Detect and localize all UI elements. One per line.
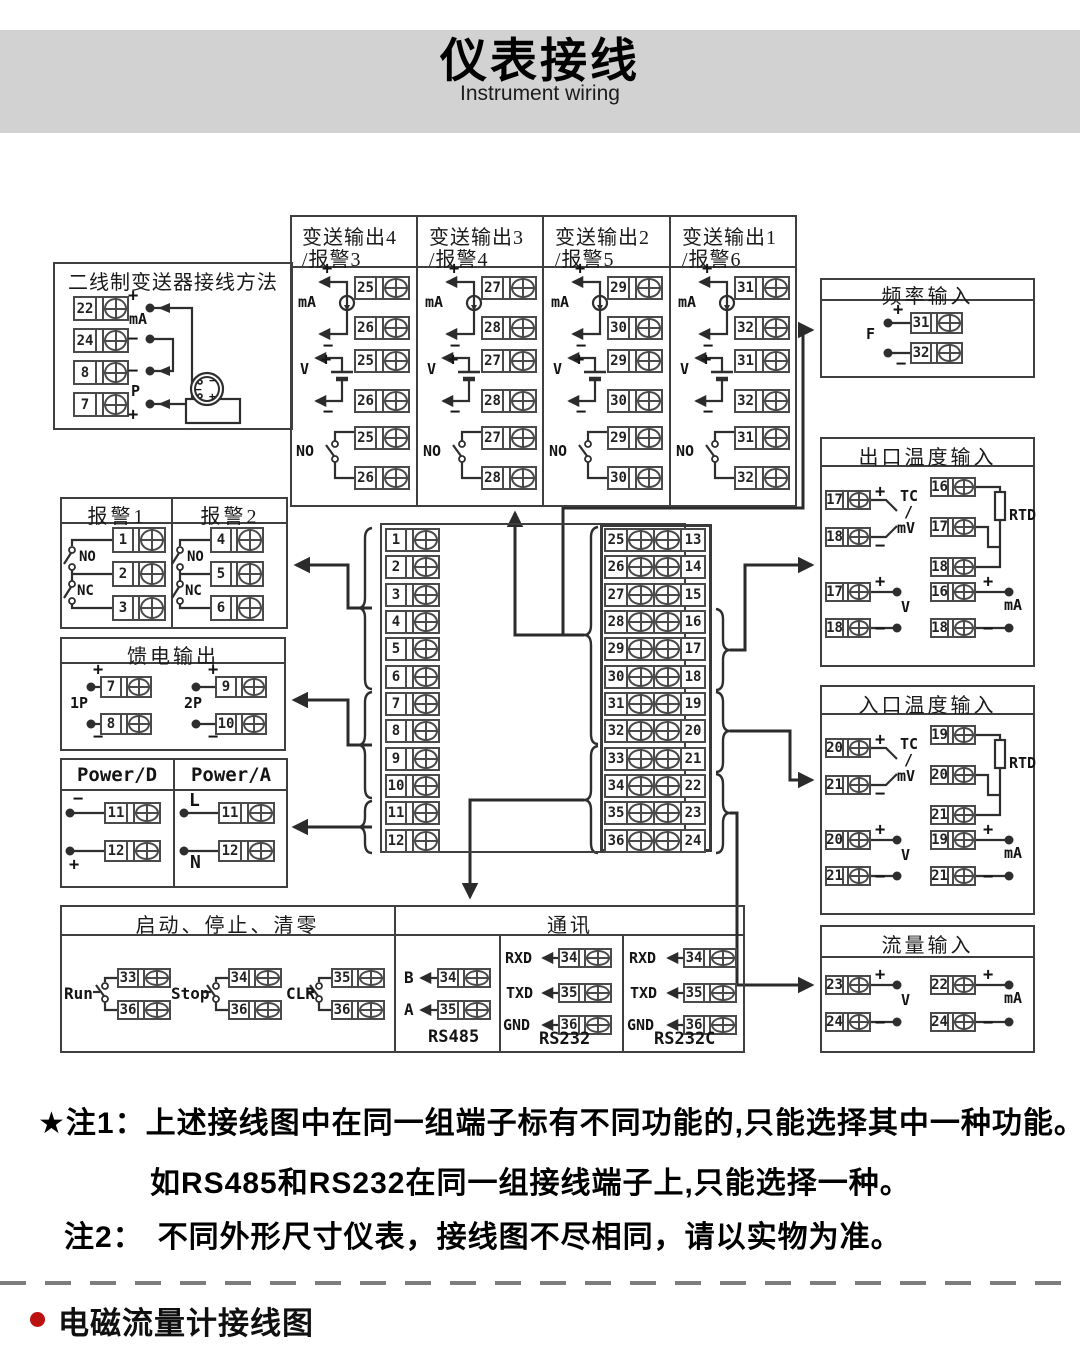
polarity-label: + (449, 261, 459, 278)
terminal-28: 28 (481, 466, 537, 490)
group-label: 2P (184, 696, 202, 711)
terminal-row-26-14: 2614 (604, 555, 706, 579)
terminal-16: 16 (930, 477, 976, 497)
terminal-18: 18 (825, 618, 871, 638)
polarity-label: + (575, 261, 585, 278)
terminal-6: 6 (385, 665, 440, 689)
terminal-35: 35 (437, 1000, 491, 1020)
terminal-12: 12 (218, 840, 275, 862)
terminal-17: 17 (825, 490, 871, 510)
terminal-26: 26 (354, 466, 410, 490)
unit-label: mA (129, 312, 147, 327)
polarity-label: + (69, 857, 79, 874)
terminal-9: 9 (215, 676, 267, 698)
terminal-4: 4 (385, 610, 440, 634)
signal-label: GND (627, 1018, 654, 1033)
polarity-label: + (322, 261, 332, 278)
comm-standard-label: RS485 (428, 1029, 479, 1046)
transmitter-minus: − (209, 375, 216, 386)
contact-label: NO (79, 550, 96, 564)
terminal-11: 11 (104, 802, 161, 824)
alarm1-title: 报警1 (62, 500, 172, 529)
polarity-label: + (701, 352, 711, 369)
unit-label: V (901, 848, 910, 863)
polarity-label: − (983, 621, 993, 638)
terminal-18: 18 (930, 618, 976, 638)
terminal-33: 33 (117, 968, 171, 988)
terminal-36: 36 (331, 1000, 385, 1020)
contact-label: NO (676, 444, 694, 459)
rtd-label: RTD (1009, 508, 1036, 523)
polarity-label: − (73, 791, 83, 808)
terminal-row-32-20: 3220 (604, 719, 706, 743)
polarity-label: − (875, 1015, 885, 1032)
stop-label: Stop (171, 986, 210, 1002)
polarity-label: + (574, 352, 584, 369)
polarity-label: − (128, 331, 138, 348)
terminal-17: 17 (825, 582, 871, 602)
polarity-label: − (875, 538, 885, 555)
terminal-36: 36 (228, 1000, 282, 1020)
terminal-10: 10 (215, 713, 267, 735)
contact-label: NC (77, 584, 94, 598)
terminal-30: 30 (607, 389, 663, 413)
terminal-35: 35 (331, 968, 385, 988)
polarity-label: − (983, 869, 993, 886)
unit-label: mA (298, 295, 316, 310)
terminal-21: 21 (930, 805, 976, 825)
terminal-row-25-13: 2513 (604, 528, 706, 552)
terminal-19: 19 (930, 830, 976, 850)
terminal-19: 19 (930, 725, 976, 745)
outlet-temp-title: 出口温度输入 (821, 441, 1034, 470)
terminal-20: 20 (825, 830, 871, 850)
polarity-label: + (983, 967, 993, 984)
unit-label: mA (1004, 598, 1022, 613)
terminal-20: 20 (825, 738, 871, 758)
terminal-10: 10 (385, 774, 440, 798)
polarity-label: − (875, 621, 885, 638)
terminal-28: 28 (481, 316, 537, 340)
clr-label: CLR (286, 986, 315, 1002)
terminal-3: 3 (385, 583, 440, 607)
polarity-label: − (93, 729, 103, 746)
terminal-26: 26 (354, 389, 410, 413)
contact-label: NO (187, 550, 204, 564)
frequency-input-title: 频率输入 (821, 280, 1034, 309)
note-1: ★注1：上述接线图中在同一组端子标有不同功能的,只能选择其中一种功能。 (38, 1098, 1080, 1142)
terminal-22: 22 (73, 296, 129, 321)
terminal-25: 25 (354, 349, 410, 373)
terminal-row-27-15: 2715 (604, 583, 706, 607)
terminal-21: 21 (825, 775, 871, 795)
polarity-label: + (321, 352, 331, 369)
mv-label: mV (897, 769, 915, 784)
terminal-row-35-23: 3523 (604, 801, 706, 825)
terminal-27: 27 (481, 276, 537, 300)
polarity-label: − (208, 729, 218, 746)
terminal-21: 21 (930, 866, 976, 886)
signal-label: TXD (630, 986, 657, 1001)
power-a-title: Power/A (176, 764, 286, 786)
group-label: 1P (70, 696, 88, 711)
terminal-34: 34 (558, 948, 612, 968)
inlet-temp-title: 入口温度输入 (821, 689, 1034, 718)
polarity-label: − (128, 363, 138, 380)
terminal-6: 6 (210, 595, 264, 621)
transmitter-minus: − (195, 384, 202, 395)
contact-label: NO (296, 444, 314, 459)
unit-label: mA (551, 295, 569, 310)
polarity-label: + (875, 574, 885, 591)
unit-label: V (680, 362, 689, 377)
terminal-34: 34 (683, 948, 737, 968)
polarity-label: + (208, 662, 218, 679)
terminal-27: 27 (481, 349, 537, 373)
polarity-label: + (875, 822, 885, 839)
terminal-32: 32 (910, 342, 963, 364)
unit-label: V (300, 362, 309, 377)
pressure-label: P (131, 384, 140, 399)
signal-label: A (404, 1002, 414, 1018)
terminal-31: 31 (734, 276, 790, 300)
terminal-1: 1 (385, 528, 440, 552)
note-1-line2: 如RS485和RS232在同一组接线端子上,只能选择一种。 (150, 1158, 911, 1202)
signal-label: TXD (506, 986, 533, 1001)
terminal-25: 25 (354, 426, 410, 450)
run-stop-title: 启动、停止、清零 (60, 909, 395, 938)
terminal-11: 11 (218, 802, 275, 824)
two-wire-box-title: 二线制变送器接线方法 (56, 266, 290, 295)
mv-label: mV (897, 521, 915, 536)
terminal-18: 18 (930, 557, 976, 577)
note-1-label: ★注1： (38, 1107, 146, 1140)
terminal-29: 29 (607, 426, 663, 450)
unit-label: mA (425, 295, 443, 310)
terminal-36: 36 (117, 1000, 171, 1020)
note-2: 注2：不同外形尺寸仪表，接线图不尽相同，请以实物为准。 (64, 1212, 902, 1256)
polarity-label: − (983, 1015, 993, 1032)
terminal-26: 26 (354, 316, 410, 340)
terminal-31: 31 (734, 426, 790, 450)
terminal-24: 24 (73, 328, 129, 353)
unit-label: V (427, 362, 436, 377)
terminal-30: 30 (607, 466, 663, 490)
terminal-8: 8 (385, 719, 440, 743)
polarity-label: + (875, 732, 885, 749)
flow-input-title: 流量输入 (821, 929, 1034, 958)
signal-label: GND (503, 1018, 530, 1033)
terminal-7: 7 (385, 692, 440, 716)
terminal-row-30-18: 3018 (604, 665, 706, 689)
dashed-divider (0, 1281, 1080, 1285)
terminal-22: 22 (930, 975, 976, 995)
terminal-29: 29 (607, 276, 663, 300)
section-title: 电磁流量计接线图 (58, 1298, 314, 1343)
terminal-29: 29 (607, 349, 663, 373)
terminal-21: 21 (825, 866, 871, 886)
polarity-label: + (893, 302, 903, 319)
polarity-label: − (875, 869, 885, 886)
terminal-35: 35 (558, 983, 612, 1003)
terminal-18: 18 (825, 527, 871, 547)
note-1-text: 上述接线图中在同一组端子标有不同功能的,只能选择其中一种功能。 (146, 1107, 1080, 1140)
terminal-12: 12 (385, 829, 440, 853)
unit-label: V (901, 600, 910, 615)
instrument-wiring-page: 仪表接线 Instrument wiring (0, 0, 1080, 1359)
terminal-4: 4 (210, 527, 264, 553)
terminal-16: 16 (930, 582, 976, 602)
terminal-30: 30 (607, 316, 663, 340)
polarity-label: − (896, 356, 906, 373)
contact-label: NO (549, 444, 567, 459)
tc-label: TC (900, 489, 918, 504)
polarity-label: + (702, 261, 712, 278)
note-2-text: 不同外形尺寸仪表，接线图不尽相同，请以实物为准。 (158, 1221, 902, 1254)
slash-label: / (904, 505, 913, 520)
polarity-label: + (875, 484, 885, 501)
frequency-label: F (866, 327, 875, 342)
polarity-label: + (128, 288, 138, 305)
terminal-24: 24 (825, 1012, 871, 1032)
polarity-label: − (576, 404, 586, 421)
terminal-32: 32 (734, 389, 790, 413)
terminal-32: 32 (734, 466, 790, 490)
polarity-label: − (875, 786, 885, 803)
slash-label: / (904, 753, 913, 768)
unit-label: V (901, 993, 910, 1008)
terminal-27: 27 (481, 426, 537, 450)
terminal-row-28-16: 2816 (604, 610, 706, 634)
comm-title: 通讯 (395, 909, 745, 938)
terminal-23: 23 (825, 975, 871, 995)
contact-label: NO (423, 444, 441, 459)
terminal-2: 2 (112, 561, 166, 587)
unit-label: mA (1004, 991, 1022, 1006)
terminal-25: 25 (354, 276, 410, 300)
terminal-20: 20 (930, 765, 976, 785)
terminal-31: 31 (910, 312, 963, 334)
polarity-label: + (875, 967, 885, 984)
alarm2-title: 报警2 (174, 500, 286, 529)
transmitter-plus: + (209, 391, 216, 402)
unit-label: mA (1004, 846, 1022, 861)
terminal-9: 9 (385, 747, 440, 771)
polarity-label: − (323, 404, 333, 421)
terminal-5: 5 (385, 637, 440, 661)
power-d-title: Power/D (62, 764, 172, 786)
signal-label: RXD (629, 951, 656, 966)
polarity-label: + (128, 407, 138, 424)
tc-label: TC (900, 737, 918, 752)
terminal-8: 8 (73, 360, 129, 385)
terminal-35: 35 (683, 983, 737, 1003)
terminal-31: 31 (734, 349, 790, 373)
polarity-label: + (93, 662, 103, 679)
terminal-2: 2 (385, 555, 440, 579)
polarity-label: + (448, 352, 458, 369)
signal-label: B (404, 970, 414, 986)
unit-label: mA (678, 295, 696, 310)
terminal-row-31-19: 3119 (604, 692, 706, 716)
terminal-24: 24 (930, 1012, 976, 1032)
run-label: Run (64, 986, 93, 1002)
terminal-28: 28 (481, 389, 537, 413)
terminal-17: 17 (930, 517, 976, 537)
terminal-34: 34 (228, 968, 282, 988)
terminal-34: 34 (437, 968, 491, 988)
red-bullet-icon (30, 1312, 45, 1327)
comm-standard-label: RS232C (654, 1031, 715, 1048)
polarity-label: + (983, 574, 993, 591)
terminal-row-29-17: 2917 (604, 637, 706, 661)
neutral-label: N (190, 854, 201, 872)
terminal-7: 7 (73, 392, 129, 417)
polarity-label: − (450, 404, 460, 421)
unit-label: V (553, 362, 562, 377)
signal-label: RXD (505, 951, 532, 966)
terminal-row-36-24: 3624 (604, 829, 706, 853)
rtd-label: RTD (1009, 756, 1036, 771)
comm-standard-label: RS232 (539, 1031, 590, 1048)
contact-label: NC (185, 584, 202, 598)
terminal-32: 32 (734, 316, 790, 340)
polarity-label: + (983, 822, 993, 839)
terminal-row-33-21: 3321 (604, 747, 706, 771)
terminal-12: 12 (104, 840, 161, 862)
note-2-label: 注2： (64, 1221, 144, 1254)
terminal-8: 8 (100, 713, 152, 735)
line-label: L (189, 792, 200, 810)
terminal-11: 11 (385, 801, 440, 825)
terminal-1: 1 (112, 527, 166, 553)
terminal-5: 5 (210, 561, 264, 587)
terminal-3: 3 (112, 595, 166, 621)
polarity-label: − (703, 404, 713, 421)
terminal-row-34-22: 3422 (604, 774, 706, 798)
terminal-7: 7 (100, 676, 152, 698)
